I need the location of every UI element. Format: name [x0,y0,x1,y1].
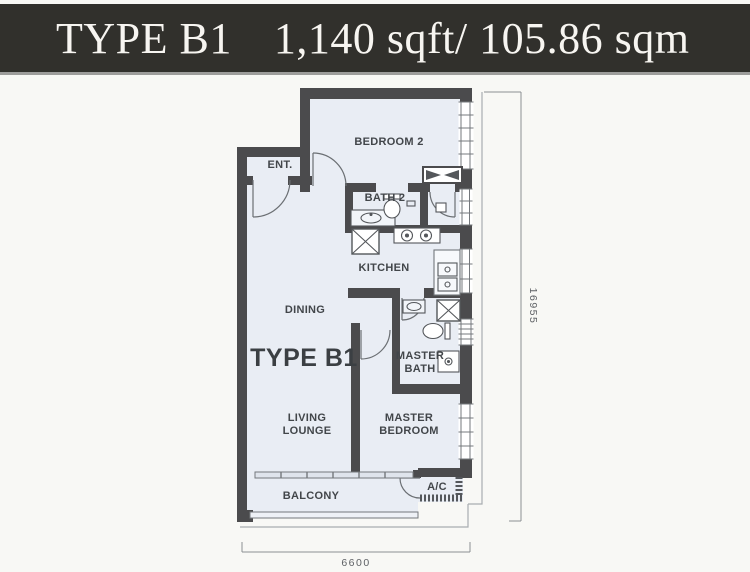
vertical-dimension-label: 16955 [527,288,539,325]
windows [459,102,474,459]
kitchen-sink-icon [434,250,460,295]
room-label-master-bed-2: BEDROOM [379,425,439,437]
room-label-dining: DINING [285,304,325,316]
room-label-living-2: LOUNGE [283,425,332,437]
room-label-master-bed-1: MASTER [385,412,433,424]
room-label-ac: A/C [427,481,447,493]
master-bath-toilet-icon [423,323,450,339]
room-label-balcony: BALCONY [283,490,340,502]
room-label-bath2: BATH 2 [365,192,406,204]
master-bath-shower-icon [437,300,460,321]
vertical-dimension-line [484,92,521,521]
window-kitchen [460,249,473,293]
window-master-bath [459,319,474,345]
balcony-edge [250,512,418,518]
sliding-door-balcony [255,472,413,478]
page: TYPE B1 1,140 sqft/ 105.86 sqm [0,0,750,572]
stove-icon [394,228,440,243]
room-label-ent: ENT. [267,159,292,171]
horizontal-dimension-line [242,542,470,552]
washer-icon [352,229,379,254]
room-label-living-1: LIVING [288,412,326,424]
room-label-master-bath-1: MASTER [396,350,444,362]
master-bath-vanity-icon [403,300,425,313]
window-bedroom2 [459,102,474,169]
store-dryer-icon [436,203,446,212]
wardrobe-icon [423,167,462,183]
room-label-kitchen: KITCHEN [359,262,410,274]
window-master-bedroom [459,404,474,459]
window-store [460,189,473,225]
room-label-bedroom2: BEDROOM 2 [354,136,423,148]
floor-plan: ENT. BEDROOM 2 BATH 2 KITCHEN DINING TYP… [0,0,750,572]
plan-type-label: TYPE B1 [250,344,358,372]
room-label-master-bath-2: BATH [405,363,436,375]
horizontal-dimension-label: 6600 [341,557,370,569]
